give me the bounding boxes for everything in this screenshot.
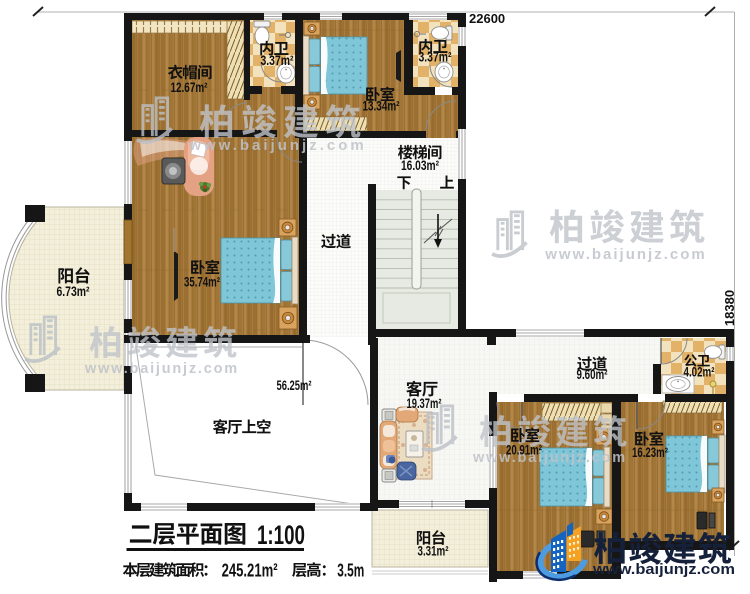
- svg-text:19.37m²: 19.37m²: [407, 395, 442, 411]
- svg-text:20.91m²: 20.91m²: [506, 442, 542, 458]
- svg-text:1:100: 1:100: [257, 520, 305, 550]
- svg-text:22600: 22600: [469, 11, 505, 26]
- svg-text:18380: 18380: [722, 290, 737, 326]
- svg-text:16.23m²: 16.23m²: [632, 444, 668, 460]
- svg-text:6.73m²: 6.73m²: [57, 283, 90, 299]
- svg-text:9.60m²: 9.60m²: [577, 366, 608, 382]
- svg-text:3.37m²: 3.37m²: [419, 49, 452, 65]
- svg-text:www.baijunjz.com: www.baijunjz.com: [188, 137, 366, 154]
- svg-text:35.74m²: 35.74m²: [184, 274, 220, 290]
- svg-text:245.21m²: 245.21m²: [222, 560, 278, 581]
- svg-text:3.37m²: 3.37m²: [261, 52, 294, 68]
- svg-text:16.03m²: 16.03m²: [401, 157, 439, 173]
- svg-text:3.31m²: 3.31m²: [418, 543, 449, 559]
- svg-text:3.5m: 3.5m: [337, 560, 364, 581]
- svg-text:www.baijunjz.com: www.baijunjz.com: [84, 361, 239, 377]
- svg-text:www.baijunjz.com: www.baijunjz.com: [472, 450, 627, 466]
- svg-text:4.02m²: 4.02m²: [684, 364, 715, 380]
- svg-text:www.baijunjz.com: www.baijunjz.com: [592, 561, 735, 578]
- svg-text:12.67m²: 12.67m²: [171, 79, 208, 95]
- svg-text:56.25m²: 56.25m²: [277, 377, 312, 393]
- svg-text:www.baijunjz.com: www.baijunjz.com: [544, 246, 706, 263]
- svg-text:13.34m²: 13.34m²: [363, 98, 400, 114]
